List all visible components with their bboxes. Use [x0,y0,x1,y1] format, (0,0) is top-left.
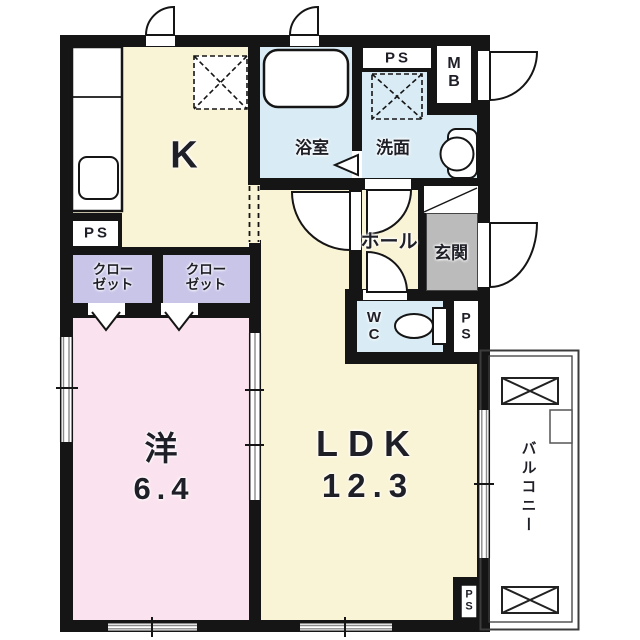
toilet-icon [395,308,447,344]
closet2-label-line2: ゼット [186,277,227,292]
ldk-door-icon [292,192,350,250]
western-room-label: 洋 [145,422,178,470]
toilet-label: W C [367,310,381,344]
ps-top-label: PS [385,50,411,67]
washroom-label: 洗面 [376,134,410,159]
closet1-label-line2: ゼット [93,277,134,292]
window-ticks [56,388,494,637]
ldk-size-label: 12.3 [322,467,414,505]
bathtub-icon [264,50,348,107]
ldk-label: LDK [316,423,420,465]
ps-mid-label: P S [461,310,470,341]
wash-basin-icon [441,129,478,178]
window-lines [61,333,490,631]
entrance-door-icon [490,223,537,287]
fridge-space-icon [194,56,247,109]
closet1-label: クロー ゼット [93,262,134,292]
meter-box-label: M B [447,55,460,91]
balcony-hatch-top-icon [502,378,558,404]
closet1-label-line1: クロー [93,262,134,277]
bath-window-door-icon [290,7,318,35]
entrance-label: 玄関 [434,239,468,264]
western-room-size-label: 6.4 [133,471,194,507]
closet2-label: クロー ゼット [186,262,227,292]
washer-space-icon [372,74,422,119]
ps-bottom-label: P S [465,589,472,614]
closet1-folding-door-icon [92,312,120,330]
open-passage-dashed [248,185,260,243]
ps-bottom-label-line1: P [465,589,472,601]
closet2-label-line1: クロー [186,262,227,277]
kitchen-label: K [170,135,197,178]
ps-mid-label-line2: S [461,326,470,342]
balcony-partition [550,410,572,443]
kitchen-window-door-icon [146,7,174,35]
floor-plan: K LDK 12.3 洋 6.4 浴室 洗面 ホール 玄関 W C M B クロ… [0,0,640,640]
meter-box-door-icon [490,52,537,100]
toilet-label-line1: W [367,310,381,327]
kitchen-counter-icon [72,47,122,211]
bathroom-label: 浴室 [295,134,329,159]
closet2-folding-door-icon [165,312,193,330]
ps-mid-label-line1: P [461,310,470,326]
bathroom-folding-door-icon [335,155,358,175]
toilet-label-line2: C [369,327,380,344]
balcony-hatch-bottom-icon [502,587,558,613]
meter-box-label-line2: B [448,73,460,91]
glazing-lines [64,333,487,629]
meter-box-label-line1: M [447,55,460,73]
ps-bottom-label-line2: S [465,601,472,613]
balcony-label: バルコニー [518,441,539,536]
plan-decorations [0,0,640,640]
hall-label: ホール [360,227,417,254]
toilet-door-icon [367,252,407,292]
ps-top-left-label: PS [84,225,110,242]
